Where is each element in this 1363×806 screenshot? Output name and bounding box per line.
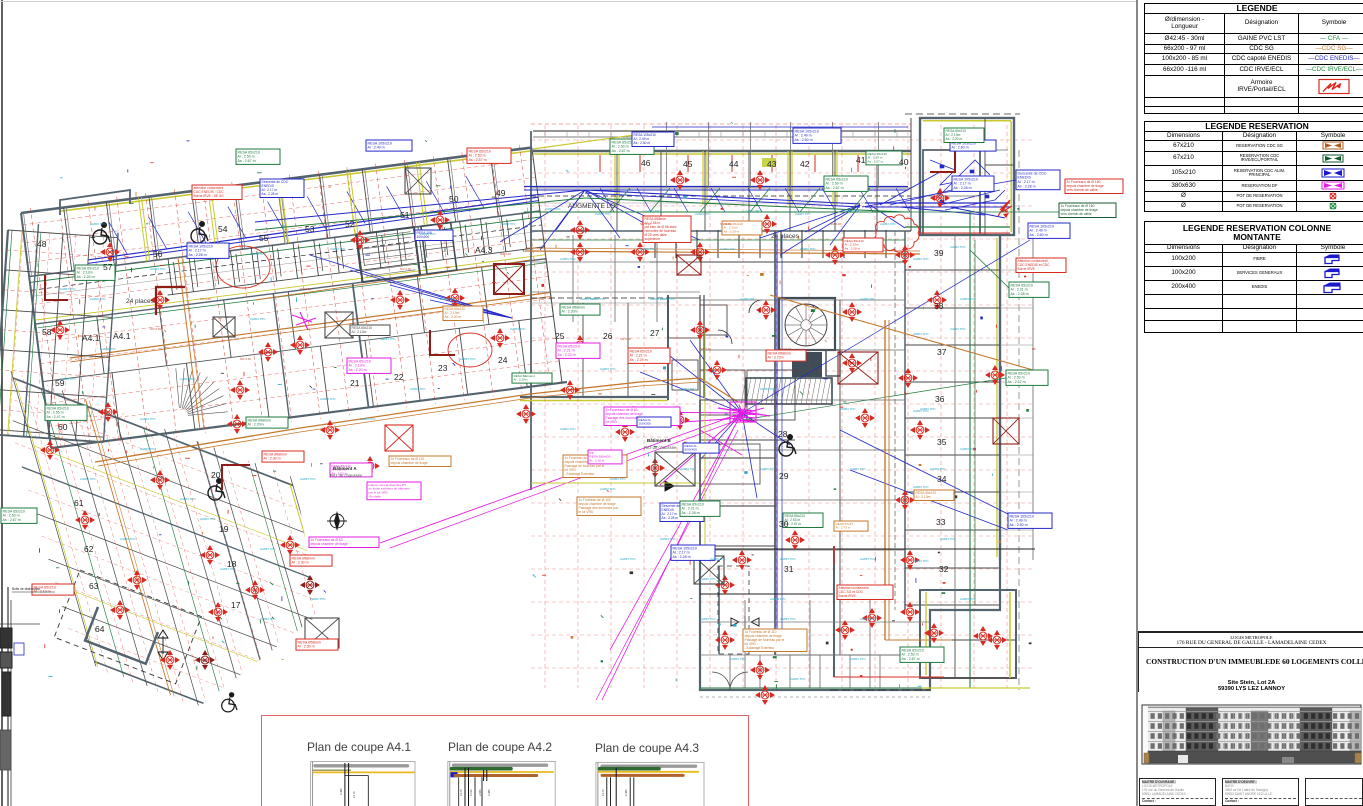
svg-text:NIV 0.00: NIV 0.00 bbox=[500, 252, 511, 256]
svg-text:2xØ63 TPC: 2xØ63 TPC bbox=[80, 477, 96, 481]
svg-text:As : 2.28 m: As : 2.28 m bbox=[1018, 184, 1036, 188]
svg-text:24 places: 24 places bbox=[126, 298, 155, 305]
svg-text:NIV 0.00: NIV 0.00 bbox=[240, 357, 251, 361]
svg-text:2xØ63 TPC: 2xØ63 TPC bbox=[845, 209, 861, 213]
svg-text:2xØ63 TPC: 2xØ63 TPC bbox=[310, 597, 326, 601]
svg-text:NIV 0.00: NIV 0.00 bbox=[720, 222, 731, 226]
svg-text:2xØ63 TPC: 2xØ63 TPC bbox=[760, 467, 776, 471]
svg-text:63: 63 bbox=[89, 581, 99, 591]
svg-text:As : 2.67 m: As : 2.67 m bbox=[868, 160, 884, 164]
svg-text:39: 39 bbox=[934, 248, 944, 258]
svg-text:17: 17 bbox=[231, 600, 241, 610]
svg-text:32: 32 bbox=[939, 564, 949, 574]
svg-text:As : 2.20 m: As : 2.20 m bbox=[77, 275, 95, 279]
svg-text:As : 2.28 m: As : 2.28 m bbox=[673, 555, 691, 559]
svg-text:2xØ63 TPC: 2xØ63 TPC bbox=[790, 677, 806, 681]
svg-text:2xØ63 TPC: 2xØ63 TPC bbox=[940, 537, 956, 541]
svg-text:62: 62 bbox=[84, 544, 94, 554]
svg-text:41: 41 bbox=[856, 155, 866, 165]
svg-text:2xØ63 TPC: 2xØ63 TPC bbox=[140, 417, 156, 421]
svg-text:Borne IRVE: Borne IRVE bbox=[1018, 267, 1036, 271]
svg-text:30: 30 bbox=[779, 519, 789, 529]
svg-text:depuis chambre de tirage: depuis chambre de tirage bbox=[311, 542, 348, 546]
svg-text:2xØ63 TPC: 2xØ63 TPC bbox=[90, 222, 106, 226]
svg-text:2xØ63 TPC: 2xØ63 TPC bbox=[640, 247, 656, 251]
svg-text:NIV 0.00: NIV 0.00 bbox=[780, 347, 791, 351]
svg-text:61: 61 bbox=[74, 498, 84, 508]
svg-text:29: 29 bbox=[779, 471, 789, 481]
svg-text:2xØ63 TPC: 2xØ63 TPC bbox=[730, 657, 746, 661]
svg-text:NIV 0.00: NIV 0.00 bbox=[620, 337, 631, 341]
svg-text:2xØ63 TPC: 2xØ63 TPC bbox=[770, 597, 786, 601]
svg-text:As : 2.28 m: As : 2.28 m bbox=[662, 516, 679, 520]
svg-text:19: 19 bbox=[219, 524, 229, 534]
svg-text:2xØ63 TPC: 2xØ63 TPC bbox=[710, 557, 726, 561]
svg-text:2xØ63 TPC: 2xØ63 TPC bbox=[700, 617, 716, 621]
svg-text:2xØ63 TPC: 2xØ63 TPC bbox=[913, 332, 929, 336]
svg-text:55: 55 bbox=[259, 233, 269, 243]
svg-text:2xØ63 TPC: 2xØ63 TPC bbox=[260, 617, 276, 621]
svg-text:2xØ63 TPC: 2xØ63 TPC bbox=[500, 222, 516, 226]
svg-text:2xØ63 TPC: 2xØ63 TPC bbox=[700, 577, 716, 581]
svg-text:2xØ63 TPC: 2xØ63 TPC bbox=[930, 467, 946, 471]
svg-text:Al : 2.30 m: Al : 2.30 m bbox=[298, 645, 315, 649]
svg-text:Al : 2.30 m: Al : 2.30 m bbox=[292, 561, 309, 565]
svg-text:2xØ63 TPC: 2xØ63 TPC bbox=[510, 327, 526, 331]
svg-text:2xØ63 TPC: 2xØ63 TPC bbox=[545, 207, 561, 211]
svg-text:Rez de chaussée: Rez de chaussée bbox=[644, 445, 677, 450]
svg-text:As : 2.20 m: As : 2.20 m bbox=[845, 247, 861, 251]
svg-text:2xØ63 TPC: 2xØ63 TPC bbox=[780, 557, 796, 561]
svg-text:2xØ63 TPC: 2xØ63 TPC bbox=[800, 247, 816, 251]
svg-text:24: 24 bbox=[498, 355, 508, 365]
svg-text:Al : 2.30 m: Al : 2.30 m bbox=[264, 457, 281, 461]
svg-text:Boite de distribution: Boite de distribution bbox=[12, 587, 40, 591]
svg-text:As : 2.67 m: As : 2.67 m bbox=[902, 657, 920, 661]
svg-text:2xØ63 TPC: 2xØ63 TPC bbox=[220, 567, 236, 571]
svg-text:2xØ63 TPC: 2xØ63 TPC bbox=[913, 257, 929, 261]
svg-text:2xØ63 TPC: 2xØ63 TPC bbox=[880, 222, 896, 226]
svg-text:2xØ63 TPC: 2xØ63 TPC bbox=[913, 485, 929, 489]
svg-text:2xØ63 TPC: 2xØ63 TPC bbox=[90, 297, 106, 301]
svg-text:20: 20 bbox=[211, 470, 221, 480]
svg-text:56: 56 bbox=[153, 249, 163, 259]
svg-text:2xØ63 TPC: 2xØ63 TPC bbox=[150, 267, 166, 271]
svg-text:NIV 0.00: NIV 0.00 bbox=[200, 297, 211, 301]
svg-text:2xØ63 TPC: 2xØ63 TPC bbox=[850, 467, 866, 471]
svg-text:Al : 2.20m: Al : 2.20m bbox=[514, 378, 528, 382]
svg-text:2xØ63 TPC: 2xØ63 TPC bbox=[120, 537, 136, 541]
svg-text:As : 2.60 m: As : 2.60 m bbox=[1010, 523, 1028, 527]
svg-text:54: 54 bbox=[218, 224, 228, 234]
svg-text:2xØ63 TPC: 2xØ63 TPC bbox=[695, 212, 711, 216]
svg-text:As : 2.28 m: As : 2.28 m bbox=[1011, 292, 1029, 296]
svg-text:23: 23 bbox=[438, 363, 448, 373]
svg-text:As : 2.67 m: As : 2.67 m bbox=[3, 518, 21, 522]
svg-text:34: 34 bbox=[937, 474, 947, 484]
svg-text:38: 38 bbox=[934, 301, 944, 311]
svg-text:2xØ63 TPC: 2xØ63 TPC bbox=[180, 497, 196, 501]
svg-text:100X200: 100X200 bbox=[639, 422, 652, 426]
svg-text:21: 21 bbox=[350, 378, 360, 388]
svg-text:2xØ63 TPC: 2xØ63 TPC bbox=[560, 257, 576, 261]
svg-text:- Eclairage Exterieur: - Eclairage Exterieur bbox=[745, 646, 776, 650]
svg-text:36: 36 bbox=[935, 394, 945, 404]
svg-text:As : 2.23 m: As : 2.23 m bbox=[558, 353, 576, 357]
svg-text:2xØ63 TPC: 2xØ63 TPC bbox=[60, 377, 76, 381]
svg-text:As : 2.20 m: As : 2.20 m bbox=[724, 230, 740, 234]
svg-text:2xØ63 TPC: 2xØ63 TPC bbox=[260, 547, 276, 551]
svg-text:37: 37 bbox=[937, 347, 947, 357]
svg-text:2xØ63 TPC: 2xØ63 TPC bbox=[645, 209, 661, 213]
svg-text:Al : 3.73m: Al : 3.73m bbox=[768, 356, 784, 360]
svg-text:NIV 0.00: NIV 0.00 bbox=[640, 222, 651, 226]
svg-text:2xØ63 TPC: 2xØ63 TPC bbox=[200, 517, 216, 521]
svg-text:Al : 2.20m: Al : 2.20m bbox=[562, 310, 578, 314]
svg-text:42: 42 bbox=[800, 159, 810, 169]
svg-text:2xØ63 TPC: 2xØ63 TPC bbox=[860, 617, 876, 621]
svg-text:2xØ63 TPC: 2xØ63 TPC bbox=[460, 357, 476, 361]
svg-text:33: 33 bbox=[936, 517, 946, 527]
svg-text:2xØ63 TPC: 2xØ63 TPC bbox=[780, 617, 796, 621]
svg-text:48: 48 bbox=[37, 239, 47, 249]
svg-text:64: 64 bbox=[95, 624, 105, 634]
svg-text:As : 2.67 m: As : 2.67 m bbox=[1008, 380, 1026, 384]
svg-text:24 places: 24 places bbox=[771, 233, 800, 240]
svg-text:51: 51 bbox=[400, 210, 410, 220]
svg-text:2xØ63 TPC: 2xØ63 TPC bbox=[620, 557, 636, 561]
svg-text:Al : 2.?3 m: Al : 2.?3 m bbox=[836, 526, 851, 530]
svg-text:2xØ63 TPC: 2xØ63 TPC bbox=[950, 245, 966, 249]
svg-text:superieure: superieure bbox=[645, 237, 661, 241]
svg-text:NIV 0.00: NIV 0.00 bbox=[150, 327, 161, 331]
svg-text:Rez de chaussée: Rez de chaussée bbox=[330, 473, 363, 478]
svg-text:vers chemin de câble: vers chemin de câble bbox=[1067, 188, 1098, 192]
svg-text:27: 27 bbox=[650, 328, 660, 338]
svg-text:2xØ63 TPC: 2xØ63 TPC bbox=[913, 409, 929, 413]
svg-text:Al : 2.13m: Al : 2.13m bbox=[916, 495, 931, 499]
svg-text:As : 2.60 m: As : 2.60 m bbox=[1030, 233, 1048, 237]
svg-text:Borne IRVE: Borne IRVE bbox=[839, 594, 857, 598]
svg-text:Borne IRVE : DE SG: Borne IRVE : DE SG bbox=[194, 194, 225, 198]
svg-text:lot VRD: lot VRD bbox=[606, 420, 618, 424]
svg-text:2xØ63 TPC: 2xØ63 TPC bbox=[360, 417, 376, 421]
svg-text:As : 2.60 m: As : 2.60 m bbox=[795, 138, 813, 142]
svg-text:Bâtiment A: Bâtiment A bbox=[333, 466, 357, 471]
svg-text:40: 40 bbox=[899, 157, 909, 167]
svg-text:vers chemin de câble: vers chemin de câble bbox=[1061, 212, 1092, 216]
svg-text:2xØ63 TPC: 2xØ63 TPC bbox=[680, 387, 696, 391]
svg-text:A4.1: A4.1 bbox=[82, 333, 100, 343]
svg-text:2xØ63 TPC: 2xØ63 TPC bbox=[860, 297, 876, 301]
svg-text:50: 50 bbox=[449, 194, 459, 204]
svg-text:2xØ63 TPC: 2xØ63 TPC bbox=[960, 597, 976, 601]
svg-text:As : 2.20 m: As : 2.20 m bbox=[946, 137, 963, 141]
svg-text:As : 2.67 m: As : 2.67 m bbox=[238, 159, 256, 163]
svg-text:800X400: 800X400 bbox=[685, 448, 698, 452]
svg-text:As : 2.28 m: As : 2.28 m bbox=[682, 511, 700, 515]
svg-text:2xØ63 TPC: 2xØ63 TPC bbox=[760, 387, 776, 391]
svg-text:46: 46 bbox=[641, 158, 651, 168]
svg-text:2xØ63 TPC: 2xØ63 TPC bbox=[840, 407, 856, 411]
svg-text:AUGMENTE LO: AUGMENTE LO bbox=[568, 203, 615, 210]
svg-text:45: 45 bbox=[683, 159, 693, 169]
svg-text:A4.1: A4.1 bbox=[113, 331, 131, 341]
svg-text:2xØ63 TPC: 2xØ63 TPC bbox=[330, 247, 346, 251]
svg-text:As : 2.28 m: As : 2.28 m bbox=[954, 186, 972, 190]
svg-text:le lot VRD: le lot VRD bbox=[579, 510, 594, 514]
svg-text:As : 2.60 m: As : 2.60 m bbox=[634, 141, 651, 145]
svg-text:2xØ63 TPC: 2xØ63 TPC bbox=[950, 327, 966, 331]
svg-text:As : 2.20 m: As : 2.20 m bbox=[349, 368, 367, 372]
svg-text:60: 60 bbox=[58, 422, 68, 432]
svg-text:2xØ63 TPC: 2xØ63 TPC bbox=[795, 212, 811, 216]
svg-text:22: 22 bbox=[394, 372, 404, 382]
svg-text:2xØ63 TPC: 2xØ63 TPC bbox=[745, 209, 761, 213]
svg-text:2xØ63 TPC: 2xØ63 TPC bbox=[320, 397, 336, 401]
svg-text:2xØ63 TPC: 2xØ63 TPC bbox=[60, 287, 76, 291]
svg-text:NIV 0.00: NIV 0.00 bbox=[400, 267, 411, 271]
svg-text:43: 43 bbox=[767, 159, 777, 169]
svg-text:26: 26 bbox=[603, 331, 613, 341]
svg-text:25: 25 bbox=[555, 331, 565, 341]
svg-text:As : 2.47 m: As : 2.47 m bbox=[47, 415, 65, 419]
svg-text:2xØ63 TPC: 2xØ63 TPC bbox=[660, 537, 676, 541]
svg-text:2xØ63 TPC: 2xØ63 TPC bbox=[440, 297, 456, 301]
svg-text:Bâtiment B: Bâtiment B bbox=[647, 438, 672, 443]
svg-text:Al : 2.16 m: Al : 2.16 m bbox=[590, 459, 605, 463]
svg-text:As : 2.28 m: As : 2.28 m bbox=[262, 192, 279, 196]
svg-text:52: 52 bbox=[345, 219, 355, 229]
svg-text:2xØ63 TPC: 2xØ63 TPC bbox=[250, 252, 266, 256]
svg-text:NIV 0.00: NIV 0.00 bbox=[300, 287, 311, 291]
svg-text:2xØ63 TPC: 2xØ63 TPC bbox=[380, 337, 396, 341]
svg-text:As : 2.29 m: As : 2.29 m bbox=[630, 358, 648, 362]
svg-text:2xØ63 TPC: 2xØ63 TPC bbox=[960, 447, 976, 451]
svg-text:49: 49 bbox=[496, 188, 506, 198]
svg-text:As : 2.67 m: As : 2.67 m bbox=[469, 158, 487, 162]
svg-text:NIV 0.00: NIV 0.00 bbox=[700, 347, 711, 351]
svg-text:2xØ63 TPC: 2xØ63 TPC bbox=[590, 297, 606, 301]
svg-text:57: 57 bbox=[103, 262, 113, 272]
svg-text:2xØ63 TPC: 2xØ63 TPC bbox=[250, 317, 266, 321]
svg-text:28: 28 bbox=[778, 429, 788, 439]
svg-text:53: 53 bbox=[305, 224, 315, 234]
svg-text:Al : 2.60 m: Al : 2.60 m bbox=[952, 146, 969, 150]
svg-text:2xØ63 TPC: 2xØ63 TPC bbox=[100, 347, 116, 351]
svg-text:2xØ63 TPC: 2xØ63 TPC bbox=[560, 427, 576, 431]
svg-text:2xØ63 TPC: 2xØ63 TPC bbox=[850, 657, 866, 661]
svg-text:As : 2.20 m: As : 2.20 m bbox=[445, 315, 462, 319]
svg-text:2xØ63 TPC: 2xØ63 TPC bbox=[960, 297, 976, 301]
svg-text:2xØ63 TPC: 2xØ63 TPC bbox=[300, 477, 316, 481]
svg-text:2xØ63 TPC: 2xØ63 TPC bbox=[595, 212, 611, 216]
svg-text:2xØ63 TPC: 2xØ63 TPC bbox=[410, 387, 426, 391]
svg-text:A4.3: A4.3 bbox=[475, 245, 493, 255]
svg-text:NIV 0.00: NIV 0.00 bbox=[830, 222, 841, 226]
svg-text:As : 2.67 m: As : 2.67 m bbox=[612, 149, 630, 153]
svg-text:As : 2.28 m: As : 2.28 m bbox=[189, 253, 207, 257]
svg-text:depuis chambre de tirage: depuis chambre de tirage bbox=[391, 461, 428, 465]
svg-text:31: 31 bbox=[784, 564, 794, 574]
svg-text:As : 2.67 m: As : 2.67 m bbox=[826, 186, 844, 190]
svg-text:2xØ63 TPC: 2xØ63 TPC bbox=[913, 559, 929, 563]
svg-text:2xØ63 TPC: 2xØ63 TPC bbox=[600, 487, 616, 491]
svg-text:-En dalle: -En dalle bbox=[369, 494, 381, 498]
svg-text:2xØ63 TPC: 2xØ63 TPC bbox=[650, 297, 666, 301]
svg-text:2xØ63 TPC: 2xØ63 TPC bbox=[720, 247, 736, 251]
svg-text:2xØ63 TPC: 2xØ63 TPC bbox=[610, 477, 626, 481]
svg-text:58: 58 bbox=[42, 327, 52, 337]
svg-text:2xØ63 TPC: 2xØ63 TPC bbox=[140, 447, 156, 451]
svg-text:2xØ63 TPC: 2xØ63 TPC bbox=[740, 297, 756, 301]
svg-text:2xØ63 TPC: 2xØ63 TPC bbox=[860, 557, 876, 561]
svg-text:2xØ63 TPC: 2xØ63 TPC bbox=[420, 232, 436, 236]
svg-text:2xØ63 TPC: 2xØ63 TPC bbox=[180, 377, 196, 381]
svg-text:2xØ63 TPC: 2xØ63 TPC bbox=[600, 367, 616, 371]
svg-text:Al : 2.49 m: Al : 2.49 m bbox=[368, 146, 385, 150]
svg-text:44: 44 bbox=[729, 159, 739, 169]
svg-text:35: 35 bbox=[937, 437, 947, 447]
svg-text:2xØ63 TPC: 2xØ63 TPC bbox=[680, 467, 696, 471]
svg-text:- Eclairage Exterieur: - Eclairage Exterieur bbox=[565, 472, 596, 476]
svg-text:Al : 2.20m: Al : 2.20m bbox=[248, 423, 264, 427]
svg-text:Al : 2.13m: Al : 2.13m bbox=[352, 330, 367, 334]
